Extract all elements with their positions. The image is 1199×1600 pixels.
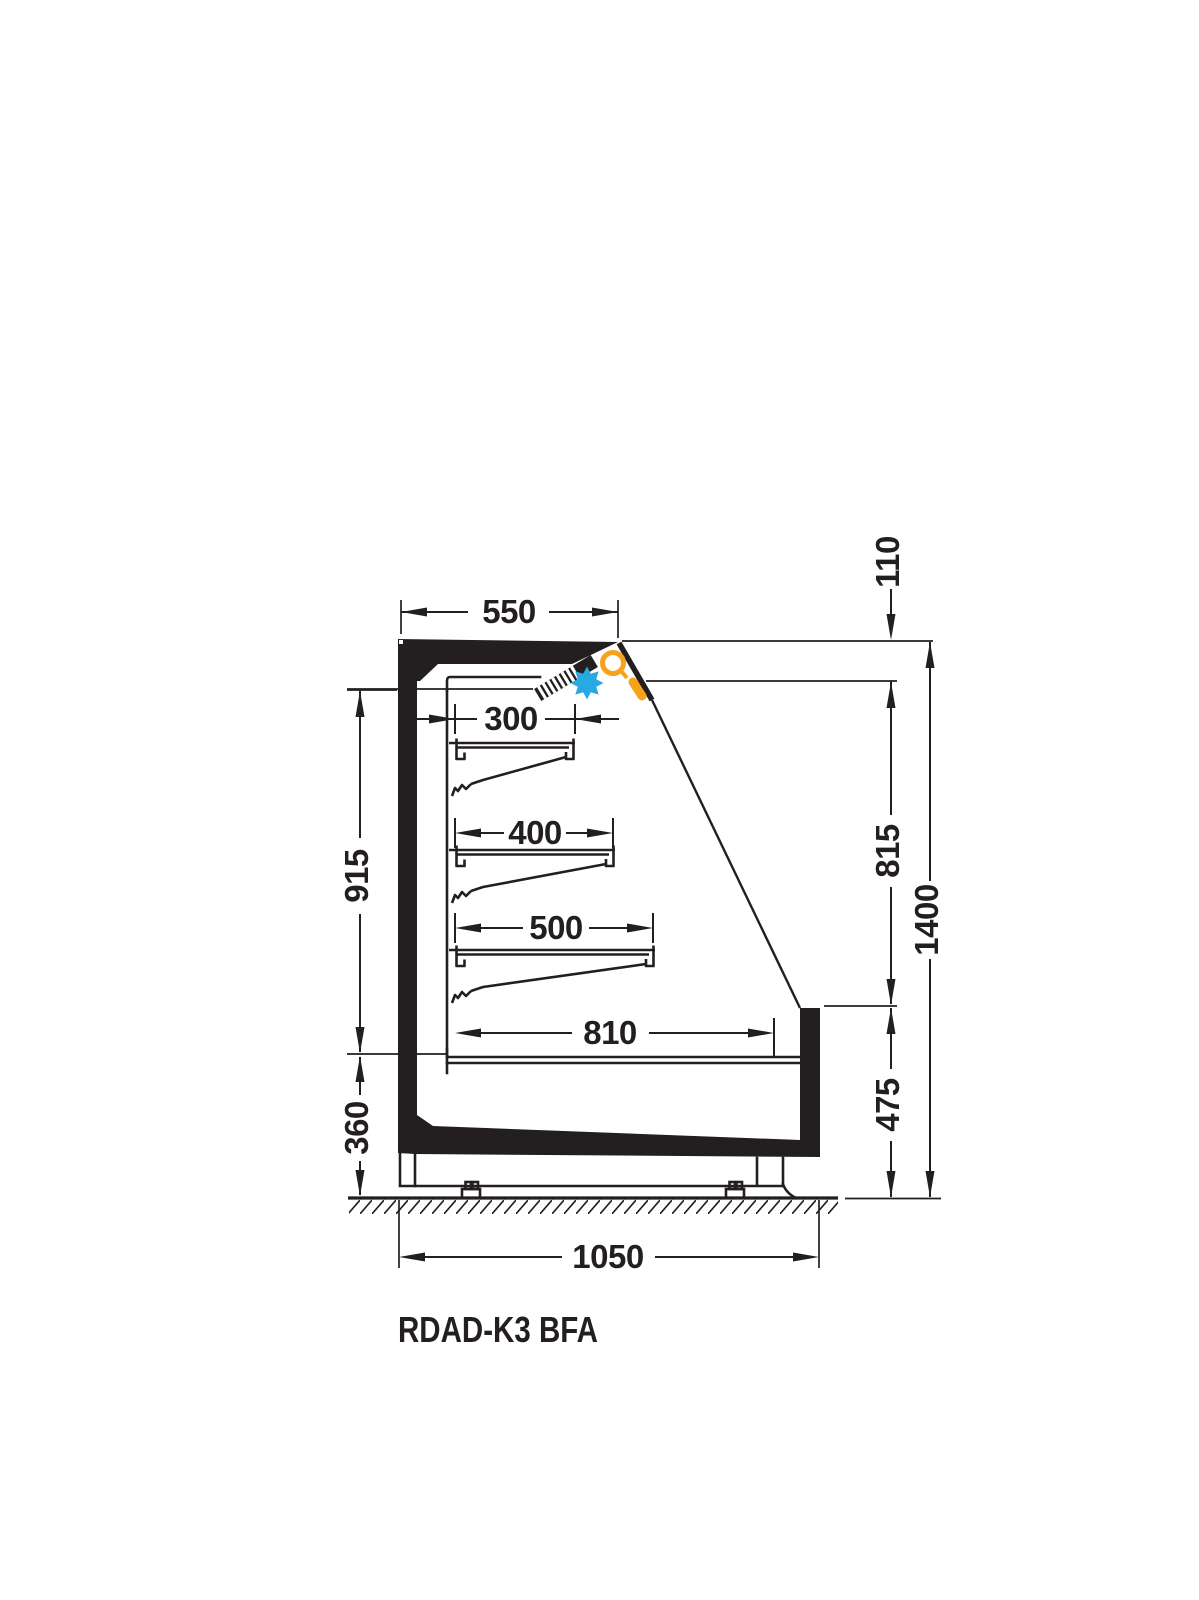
dim-shelf-mid: 400 (455, 814, 613, 851)
dim-interior-height: 915 (338, 690, 446, 1054)
foot-left (462, 1182, 480, 1198)
dim-top-depth: 550 (401, 593, 618, 638)
dim-label-1400: 1400 (908, 884, 945, 955)
deck (447, 1049, 799, 1073)
dim-deck-depth: 810 (455, 1014, 774, 1056)
dim-front-height: 475 (845, 1008, 941, 1199)
dim-label-815: 815 (869, 824, 906, 878)
dim-label-500: 500 (529, 909, 583, 946)
foot-right (726, 1182, 744, 1198)
cabinet (347, 639, 838, 1214)
dim-label-300: 300 (484, 700, 538, 737)
drawing-page: 550 110 815 475 1400 915 360 (0, 0, 1199, 1600)
dim-label-475: 475 (869, 1078, 906, 1132)
dim-label-360: 360 (338, 1101, 375, 1155)
cabinet-body (398, 639, 820, 1157)
shelf-low (449, 946, 655, 1004)
model-title: RDAD-K3 BFA (398, 1309, 598, 1350)
shelf-mid (449, 846, 615, 904)
dim-shelf-top: 300 (411, 700, 619, 737)
ground-hatching (349, 1200, 838, 1215)
dim-label-400: 400 (508, 814, 562, 851)
dim-shelf-low: 500 (455, 909, 653, 946)
dim-label-1050: 1050 (572, 1238, 643, 1275)
technical-drawing: 550 110 815 475 1400 915 360 (0, 0, 1199, 1600)
dim-base-height: 360 (338, 1056, 375, 1196)
shelf-top (449, 739, 575, 797)
dim-label-810: 810 (583, 1014, 637, 1051)
dim-total-height: 1400 (908, 642, 945, 1197)
dim-canopy-height: 110 (622, 536, 933, 681)
ground (348, 1198, 838, 1214)
fan-icon (571, 667, 604, 700)
plinth (400, 1153, 796, 1198)
dim-opening-height: 815 (824, 681, 906, 1006)
ceiling-panel (447, 677, 540, 690)
canopy-corner-notch (399, 640, 403, 644)
dim-label-550: 550 (482, 593, 536, 630)
dim-label-915: 915 (338, 849, 375, 903)
dim-label-110: 110 (869, 536, 906, 588)
glass-front (652, 700, 800, 1008)
